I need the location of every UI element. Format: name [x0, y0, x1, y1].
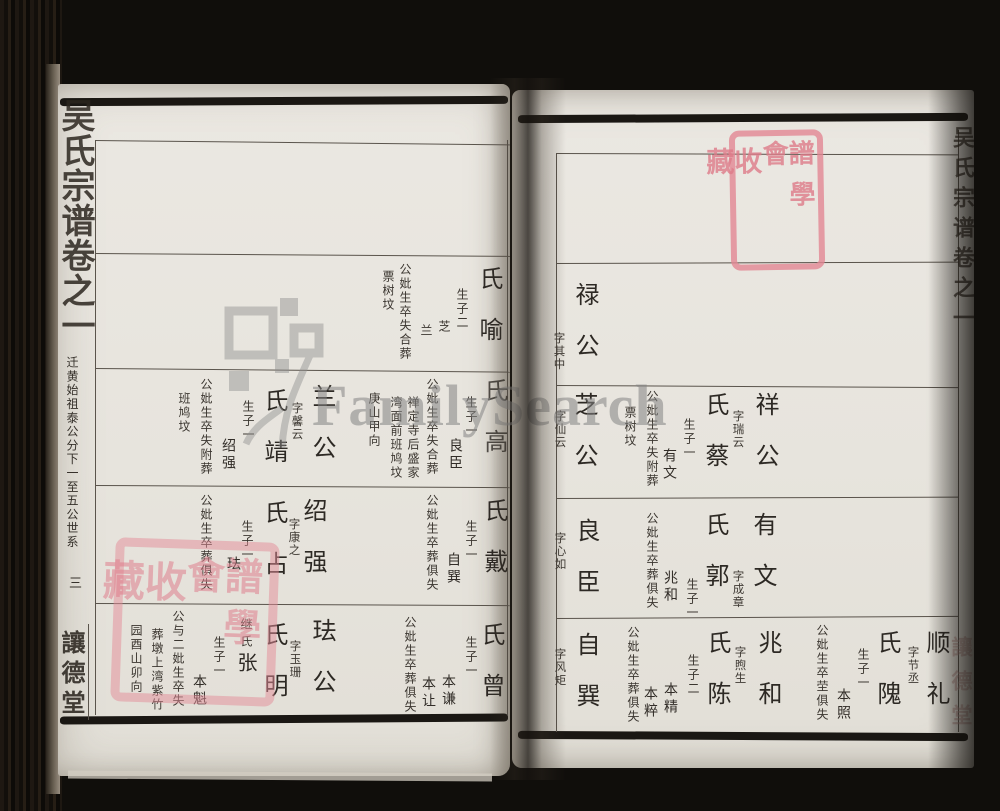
library-collection-seal: 譜學會 收藏	[110, 537, 280, 707]
sons-note: 生子一	[857, 648, 869, 690]
entry-name: 祥公	[753, 392, 777, 494]
son-name: 本让	[421, 676, 435, 710]
seal-column: 譜學會	[180, 555, 261, 692]
sons-note: 生子一	[465, 520, 477, 562]
row-divider	[95, 140, 510, 146]
courtesy-name: 字煦生	[734, 646, 746, 685]
page-bottom-edge	[68, 771, 492, 782]
entry-name: 绍强	[301, 498, 325, 600]
burial-note: 公妣生卒茔俱失	[816, 624, 828, 722]
seal-char: 會	[180, 554, 226, 607]
row-divider	[556, 497, 958, 500]
row-divider	[556, 616, 958, 619]
burial-note: 票树坟	[382, 270, 394, 312]
seal-column: 收藏	[704, 140, 762, 261]
sons-note: 生子一	[683, 418, 695, 460]
fold-column-hall-name: 讓德堂	[950, 636, 971, 738]
seal-char: 藏	[94, 558, 146, 648]
burial-note: 公妣生卒葬俱失	[426, 494, 438, 592]
courtesy-name: 字风矩	[554, 648, 566, 687]
courtesy-name: 字其中	[553, 332, 565, 371]
top-border-bar	[518, 113, 968, 123]
entry-name: 顺礼	[924, 630, 948, 732]
burial-note: 公妣生卒失合葬	[399, 263, 411, 361]
familysearch-tree-logo	[222, 296, 324, 452]
son-name: 本粹	[643, 686, 657, 720]
folio-number: 三	[67, 576, 80, 589]
burial-note: 班鸠坟	[178, 392, 190, 434]
entry-name: 珐公	[310, 618, 334, 720]
entry-wife-name: 氏喻	[477, 266, 501, 368]
sons-note: 生子二	[687, 654, 699, 696]
courtesy-name: 字瑞云	[732, 410, 744, 449]
son-name: 本谦	[441, 674, 455, 708]
seal-char: 藏	[702, 147, 736, 224]
entry-name: 兆和	[756, 630, 780, 732]
burial-note: 公妣生卒葬俱失	[646, 512, 658, 610]
seal-column: 收藏	[96, 552, 185, 689]
fold-column-title: 吴氏宗谱卷之一	[950, 126, 972, 336]
entry-wife-name: 氏隗	[875, 630, 899, 732]
entry-name: 自巽	[574, 632, 598, 734]
seal-column: 譜學會	[760, 139, 814, 260]
margin-frame-line	[88, 624, 89, 720]
seal-char: 學	[216, 607, 262, 660]
son-name: 兆和	[663, 570, 677, 604]
entry-wife-name: 氏曾	[479, 622, 503, 724]
burial-note: 公妣生卒葬俱失	[627, 626, 639, 724]
courtesy-name: 字玉珊	[289, 640, 301, 679]
son-name: 良臣	[448, 438, 462, 472]
son-name: 芝	[438, 320, 450, 334]
entry-wife-name: 氏蔡	[703, 392, 727, 494]
library-collection-seal: 譜學會 收藏	[729, 129, 825, 271]
burial-note: 公妣生卒失附葬	[200, 378, 212, 476]
sons-note: 生子二	[456, 288, 468, 330]
courtesy-name: 字心如	[554, 532, 566, 571]
courtesy-name: 字康之	[288, 518, 300, 557]
familysearch-watermark: FamilySearch	[312, 372, 668, 439]
son-name: 兰	[420, 324, 432, 338]
spine-title: 吴氏宗谱卷之一	[58, 98, 92, 343]
son-name: 自巽	[446, 552, 460, 586]
son-name: 本照	[836, 688, 850, 722]
row-divider	[95, 253, 510, 257]
seal-char: 學	[785, 180, 816, 222]
top-border-bar	[60, 96, 508, 106]
genealogy-book-scan: 吴氏宗谱卷之一 迁黄始祖泰公分下一至五公世系 三 讓德堂 氏喻 生子二 芝 兰 …	[0, 0, 1000, 811]
courtesy-name: 字节丞	[907, 646, 919, 685]
hall-name: 讓德堂	[59, 630, 83, 720]
entry-name: 良臣	[574, 518, 598, 620]
row-divider	[95, 485, 510, 489]
entry-name: 有文	[751, 512, 775, 614]
margin-lineage-heading: 迁黄始祖泰公分下一至五公世系	[66, 356, 78, 549]
sons-note: 生子一	[465, 636, 477, 678]
sons-note: 生子一	[686, 578, 698, 620]
entry-wife-name: 氏戴	[482, 498, 506, 600]
son-name: 本精	[663, 682, 677, 716]
entry-wife-name: 氏郭	[703, 512, 727, 614]
entry-name: 禄公	[573, 282, 597, 384]
seal-char: 會	[758, 140, 789, 182]
entry-wife-name: 氏陈	[705, 630, 729, 732]
courtesy-name: 字成章	[732, 570, 744, 609]
son-name: 有文	[662, 448, 676, 482]
burial-note: 公妣生卒葬俱失	[404, 616, 416, 714]
